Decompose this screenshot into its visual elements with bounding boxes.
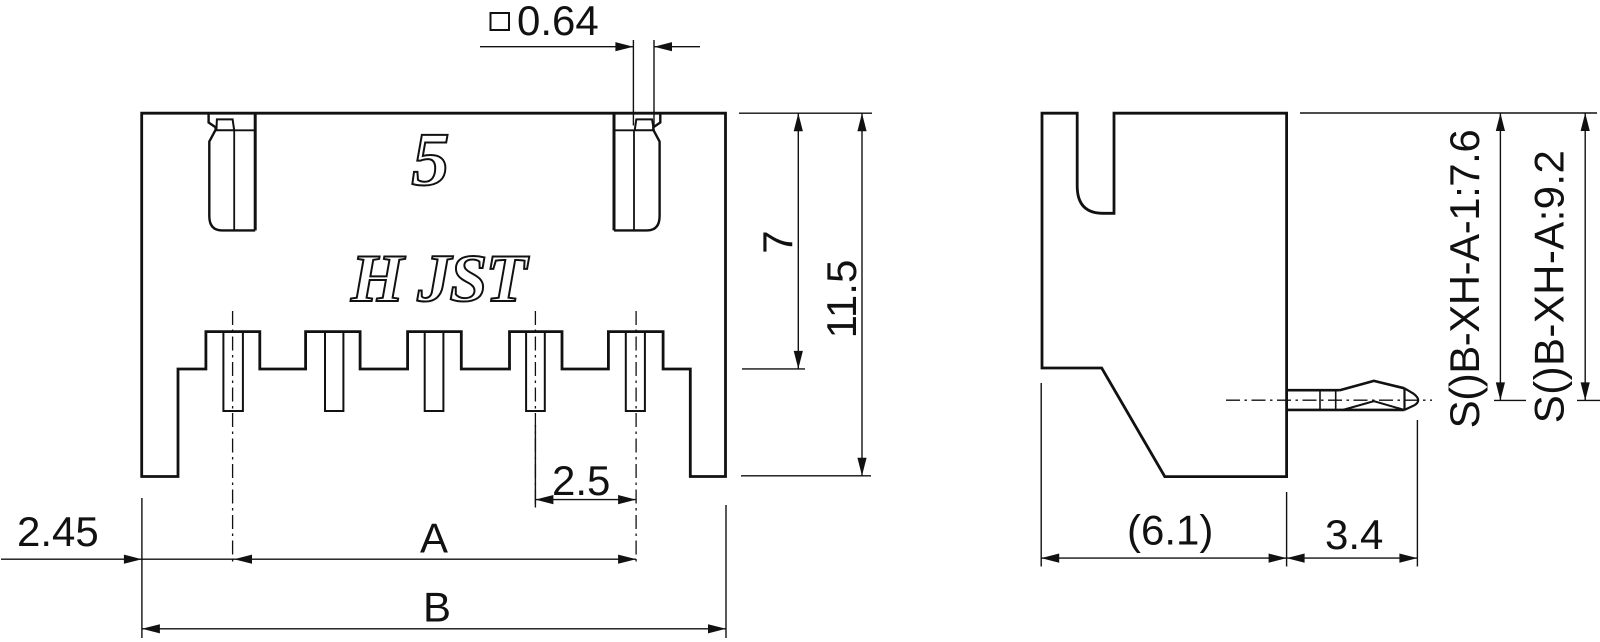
svg-text:B: B <box>423 584 451 631</box>
svg-text:0.64: 0.64 <box>517 0 599 44</box>
svg-text:S()B-XH-A:9.2: S()B-XH-A:9.2 <box>1526 150 1573 423</box>
svg-text:2.5: 2.5 <box>552 457 610 504</box>
svg-text:3.4: 3.4 <box>1325 511 1383 558</box>
svg-text:H JST: H JST <box>350 240 529 316</box>
svg-text:5: 5 <box>412 118 450 202</box>
svg-text:7: 7 <box>754 230 801 253</box>
svg-text:A: A <box>420 515 448 562</box>
svg-text:11.5: 11.5 <box>818 260 865 339</box>
svg-text:(6.1): (6.1) <box>1127 507 1213 554</box>
svg-text:2.45: 2.45 <box>17 508 99 555</box>
svg-text:S()B-XH-A-1:7.6: S()B-XH-A-1:7.6 <box>1441 129 1488 428</box>
